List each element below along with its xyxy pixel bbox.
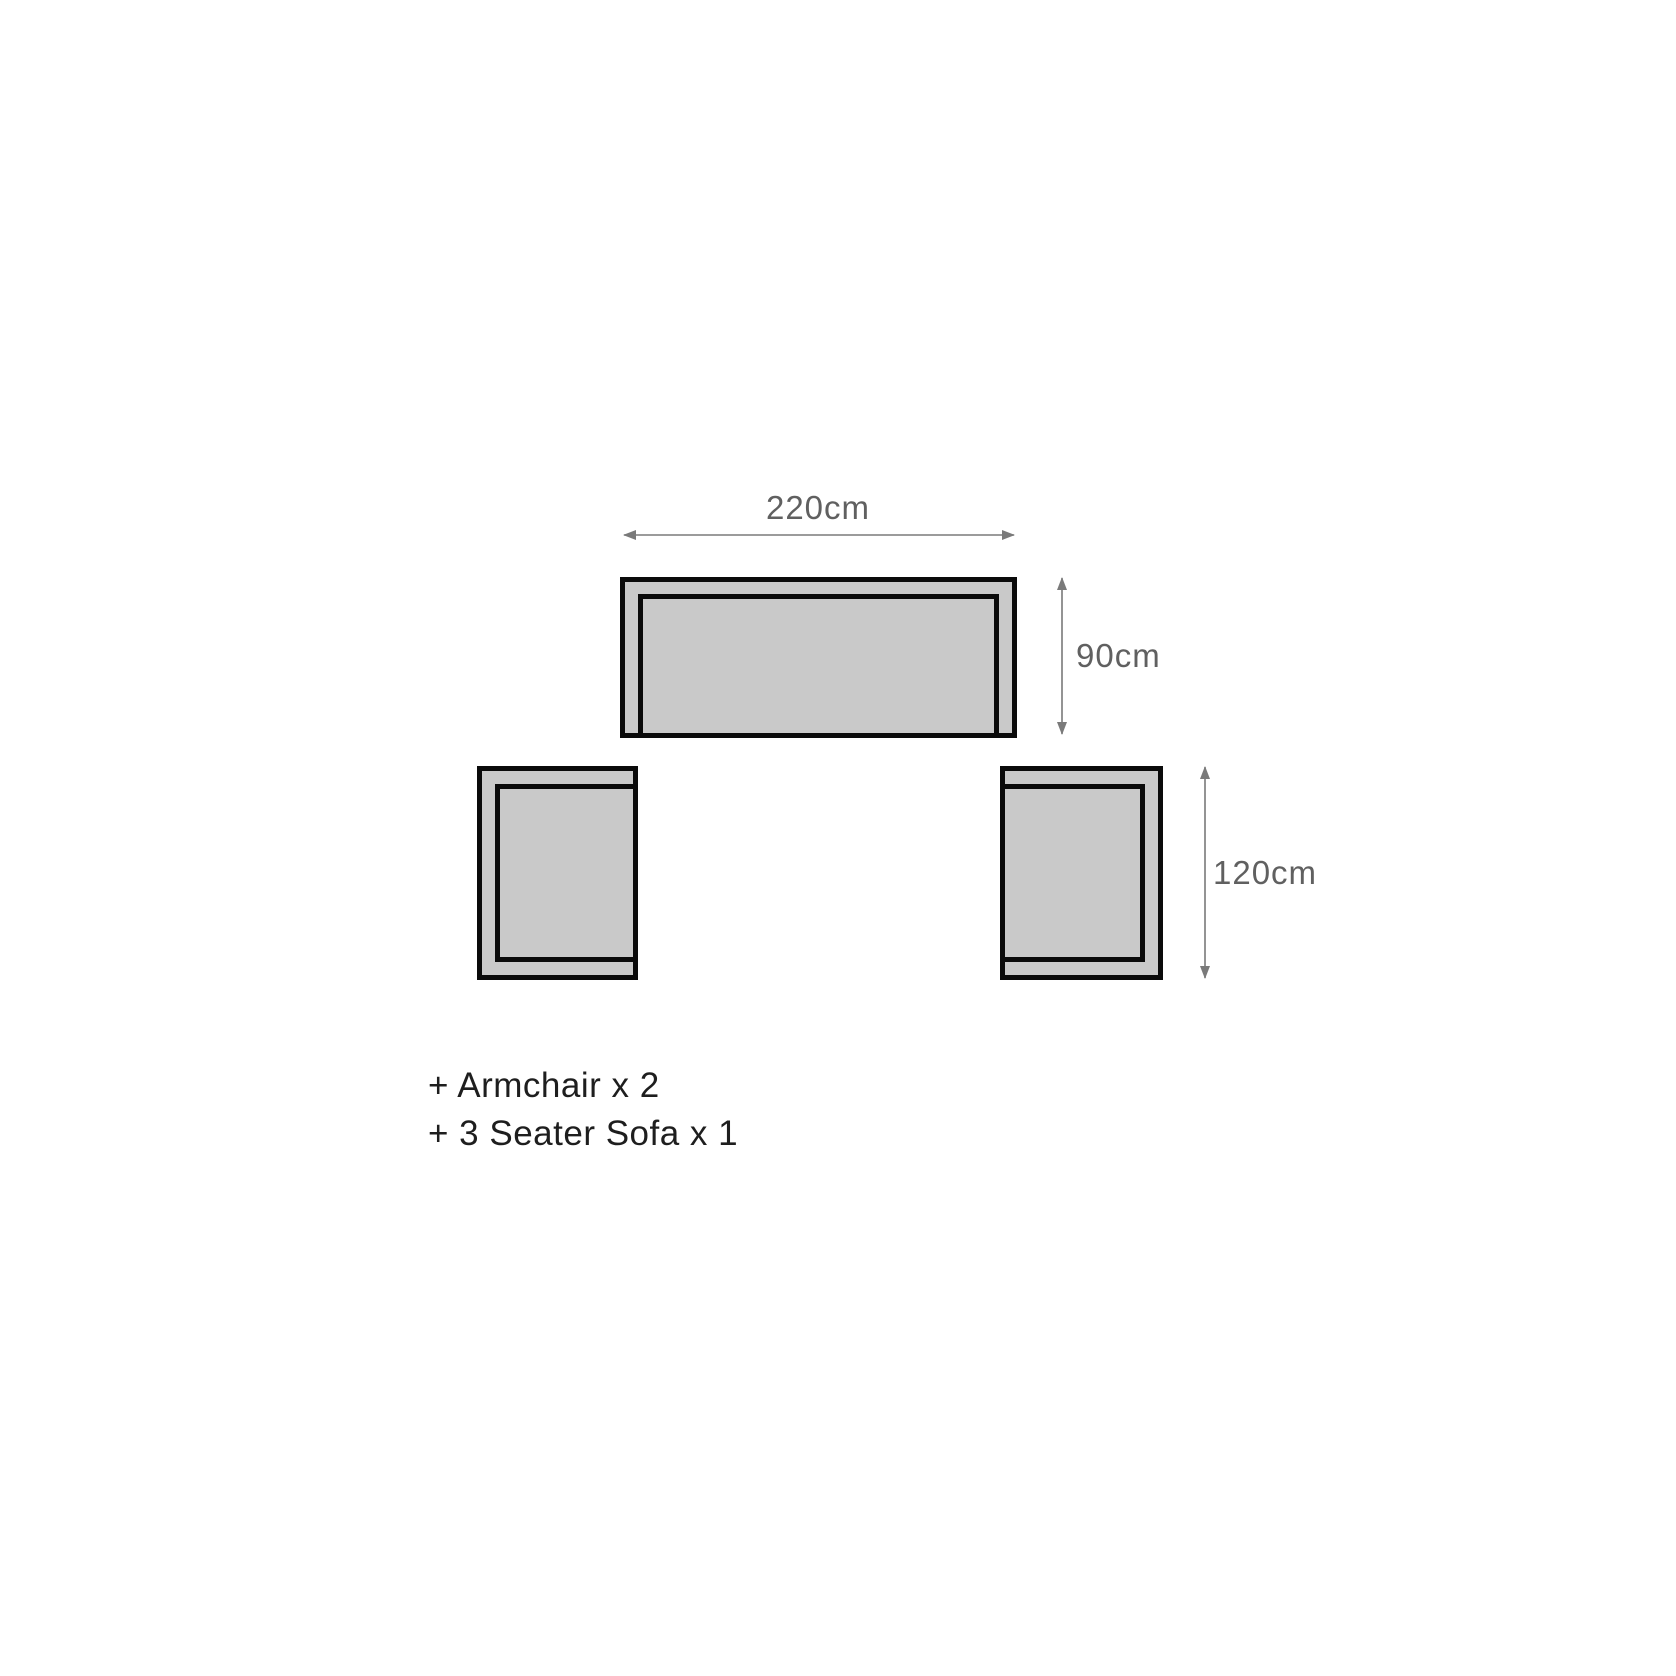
- sofa-depth-label: 90cm: [1076, 638, 1161, 674]
- sofa-top-view: [620, 577, 1017, 738]
- sofa-width-label: 220cm: [766, 490, 870, 526]
- furniture-dimensions-diagram: 220cm 90cm 120cm + Armchair x 2 + 3 Seat…: [0, 0, 1676, 1676]
- legend-sofa-line: + 3 Seater Sofa x 1: [428, 1110, 738, 1158]
- armchair-depth-label: 120cm: [1213, 855, 1317, 891]
- armchair-left-seat: [495, 784, 633, 962]
- armchair-right-top-view: [1000, 766, 1163, 980]
- armchair-left-top-view: [477, 766, 638, 980]
- sofa-seat: [638, 594, 999, 733]
- dimension-arrows: [0, 0, 1676, 1676]
- legend-armchair-line: + Armchair x 2: [428, 1062, 738, 1110]
- armchair-right-seat: [1005, 784, 1145, 962]
- legend: + Armchair x 2 + 3 Seater Sofa x 1: [428, 1062, 738, 1158]
